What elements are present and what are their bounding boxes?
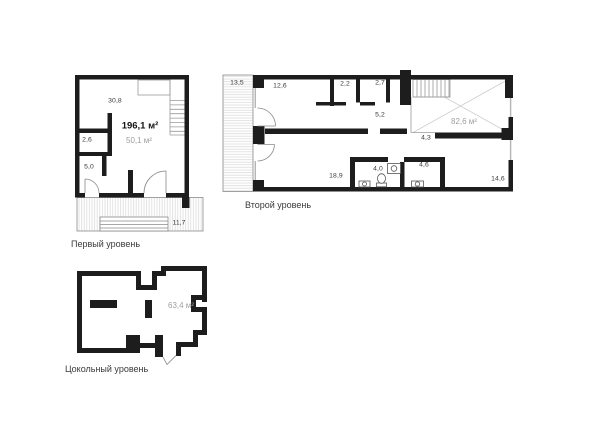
second-level-terrace (223, 75, 253, 192)
bathroom-area-label: 4,0 (373, 167, 383, 174)
first-level-plan (75, 75, 203, 231)
washer-icon (388, 164, 401, 174)
room-area-label: 2,7 (375, 81, 385, 88)
second-level-plan (223, 70, 513, 192)
interior-wall-bar (90, 300, 117, 308)
room-area-label: 2,2 (340, 82, 350, 89)
room-area-label: 5,0 (84, 165, 94, 172)
first-level-doors (85, 171, 166, 193)
floor-plan-drawing (0, 0, 600, 446)
hall-area-label: 5,2 (375, 113, 385, 120)
room-area-label: 12,6 (273, 84, 287, 91)
interior-wall-bar (145, 300, 152, 318)
second-level-caption: Второй уровень (245, 200, 311, 210)
entrance-door-mark (163, 356, 176, 365)
toilet-icon (377, 174, 387, 187)
basement-area-label: 63,4 м² (168, 302, 194, 310)
room-area-label: 18,9 (329, 174, 343, 181)
basement-walls (77, 266, 207, 357)
first-level-caption: Первый уровень (71, 239, 140, 249)
terrace-area-label: 11,7 (172, 221, 185, 228)
room-area-label: 2,6 (82, 137, 92, 144)
second-level-walls (253, 70, 513, 192)
bathroom-area-label: 4,6 (419, 163, 429, 170)
room-area-label: 14,6 (491, 177, 505, 184)
basement-plan (77, 266, 207, 365)
room-area-label: 30,8 (108, 99, 122, 106)
secondary-area-label: 50,1 м² (126, 137, 152, 145)
total-area-label: 196,1 м² (122, 121, 159, 131)
sink-icon (359, 181, 370, 187)
terrace-area-label: 13,5 (230, 81, 244, 88)
bathroom-fixtures (359, 164, 424, 188)
second-level-stairs (411, 80, 450, 133)
corridor-area-label: 4,3 (421, 136, 431, 143)
sink-icon (412, 181, 424, 187)
basement-caption: Цокольный уровень (65, 364, 148, 374)
void-area-label: 82,6 м² (451, 118, 477, 126)
entry-steps (100, 217, 168, 231)
floor-plan-sheet: 30,8 196,1 м² 50,1 м² 2,6 5,0 11,7 Первы… (0, 0, 600, 446)
